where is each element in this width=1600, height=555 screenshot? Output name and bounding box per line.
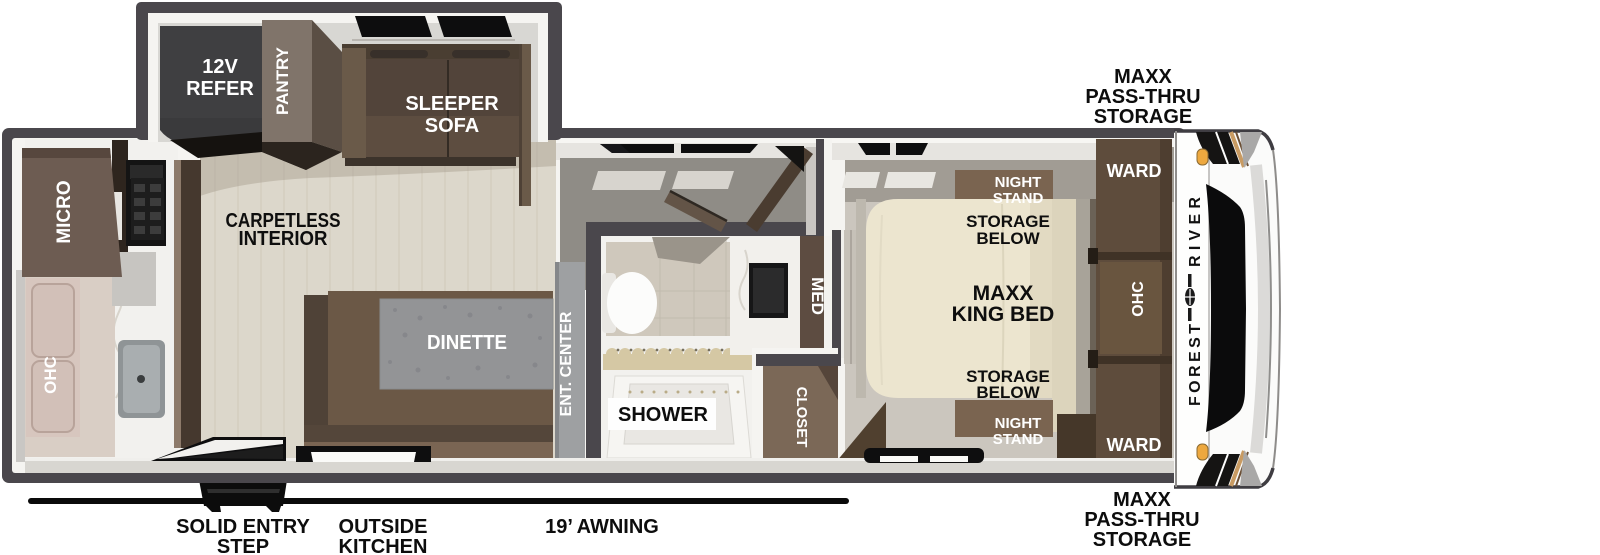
svg-text:19’ AWNING: 19’ AWNING [545,516,659,538]
svg-text:NIGHT: NIGHT [995,415,1042,432]
svg-text:SHOWER: SHOWER [618,404,709,426]
svg-text:OHC: OHC [1130,281,1147,317]
svg-text:BELOW: BELOW [976,229,1040,248]
svg-text:KITCHEN: KITCHEN [339,536,428,555]
svg-text:PASS-THRU: PASS-THRU [1085,86,1200,108]
svg-text:KING BED: KING BED [952,303,1055,326]
svg-text:ENT. CENTER: ENT. CENTER [558,311,575,416]
svg-text:SLEEPER: SLEEPER [405,93,499,115]
svg-text:MAXX: MAXX [1113,489,1171,511]
svg-text:DINETTE: DINETTE [427,332,507,354]
svg-text:NIGHT: NIGHT [995,174,1042,191]
svg-text:BELOW: BELOW [976,383,1040,402]
svg-text:STAND: STAND [993,431,1044,448]
svg-text:STORAGE: STORAGE [1094,106,1193,128]
svg-text:MED: MED [808,277,827,315]
svg-text:PANTRY: PANTRY [273,46,292,115]
svg-text:RIVER: RIVER [1187,195,1204,267]
svg-text:MAXX: MAXX [973,282,1034,305]
svg-text:STORAGE: STORAGE [1093,529,1192,551]
svg-text:PASS-THRU: PASS-THRU [1084,509,1199,531]
svg-text:INTERIOR: INTERIOR [239,228,329,250]
svg-text:SOLID ENTRY: SOLID ENTRY [176,516,310,538]
svg-text:MAXX: MAXX [1114,66,1172,88]
svg-text:CLOSET: CLOSET [793,387,810,448]
svg-text:WARD: WARD [1107,435,1162,455]
svg-text:STEP: STEP [217,536,269,555]
svg-text:STAND: STAND [993,190,1044,207]
svg-text:MICRO: MICRO [54,180,75,243]
svg-text:OHC: OHC [41,356,60,394]
svg-text:REFER: REFER [186,78,254,100]
svg-text:OUTSIDE: OUTSIDE [339,516,428,538]
svg-text:SOFA: SOFA [425,115,479,137]
svg-text:12V: 12V [202,56,238,78]
svg-text:FOREST: FOREST [1187,322,1204,406]
svg-text:WARD: WARD [1107,161,1162,181]
